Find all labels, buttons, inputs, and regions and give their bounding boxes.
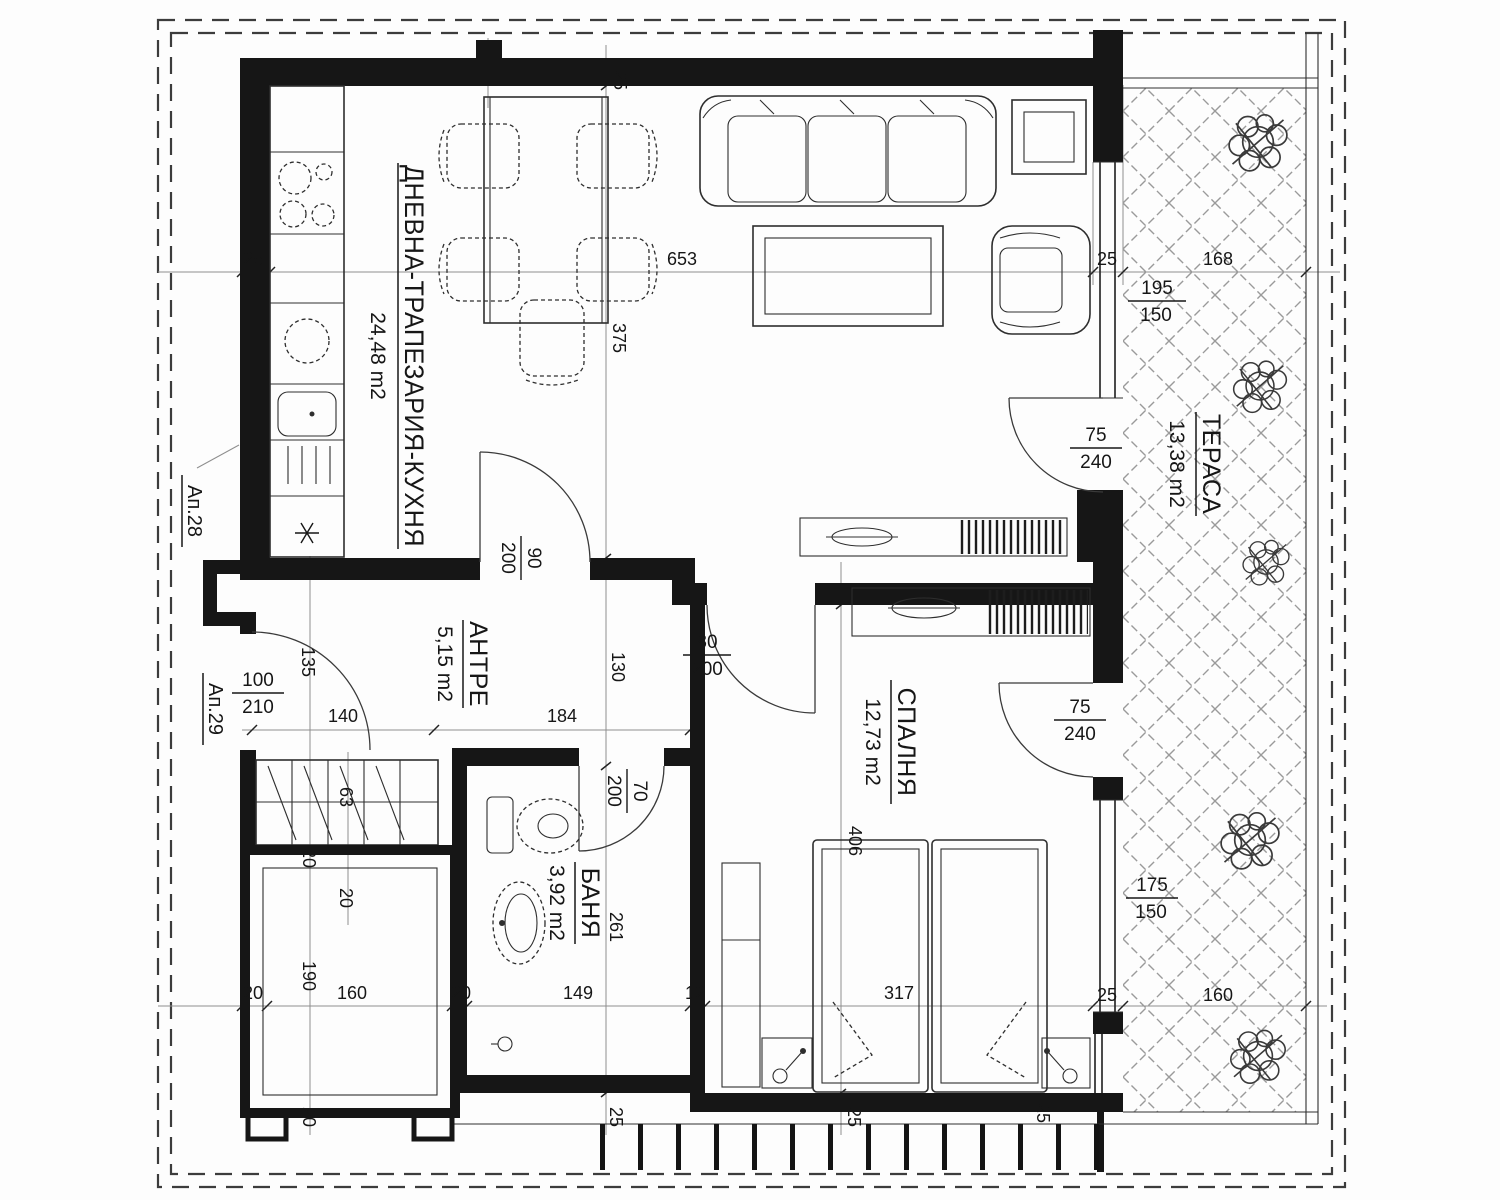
dim-bedroom-25-bottom: 25 bbox=[844, 1107, 864, 1127]
plan-rect bbox=[992, 226, 1090, 334]
plan-path bbox=[288, 446, 330, 484]
spec-bath-den: 200 bbox=[603, 775, 624, 807]
chair bbox=[447, 124, 519, 188]
plan-ellipse bbox=[538, 814, 568, 838]
closet-hanger-hatch bbox=[268, 766, 404, 840]
dim-axis-25-top: 25 bbox=[610, 70, 630, 90]
door-swing-bedroom bbox=[707, 605, 815, 713]
sofa bbox=[700, 96, 996, 206]
plan-rect bbox=[932, 840, 1047, 1092]
dim-bedroom-406: 406 bbox=[845, 826, 865, 856]
dining-table bbox=[484, 97, 608, 323]
dim-shaft-20-top: 20 bbox=[299, 848, 319, 868]
dim-top-25-left: 25 bbox=[243, 249, 263, 269]
neighbor-ap28: Ап.28 bbox=[183, 485, 205, 537]
plan-circle bbox=[499, 920, 505, 926]
plan-rect bbox=[888, 116, 966, 202]
fridge-snowflake-icon bbox=[295, 523, 319, 543]
plan-circle bbox=[316, 164, 332, 180]
spec-window-living-num: 195 bbox=[1141, 278, 1173, 299]
plan-path bbox=[703, 100, 993, 118]
wall-living-hall-left bbox=[240, 558, 480, 580]
plan-rect bbox=[822, 849, 919, 1083]
room-area-bedroom: 12,73 m2 bbox=[861, 698, 884, 786]
terrace-tile-hatch bbox=[1123, 88, 1306, 1112]
chair bbox=[447, 238, 519, 301]
wall-top bbox=[240, 58, 1123, 86]
spec-living-door: 90 200 bbox=[497, 536, 544, 580]
spec-terrace-bedroom-num: 75 bbox=[1069, 697, 1090, 718]
dim-hall-140: 140 bbox=[328, 706, 358, 726]
room-name-living: ДНЕВНА-ТРАПЕЗАРИЯ-КУХНЯ bbox=[399, 165, 429, 547]
room-area-bath: 3,92 m2 bbox=[545, 865, 568, 941]
spec-bath-num: 70 bbox=[629, 780, 650, 801]
wall-step-block bbox=[672, 558, 695, 605]
room-name-hall: АНТРЕ bbox=[464, 621, 492, 707]
plan-rect bbox=[988, 590, 1088, 634]
plan-rect bbox=[813, 840, 928, 1092]
label-ap29: Ап.29 bbox=[203, 673, 226, 745]
kitchen-sink-bowl-icon bbox=[285, 319, 329, 363]
room-name-terrace: ТЕРАСА bbox=[1197, 414, 1225, 514]
plan-path bbox=[833, 1002, 872, 1078]
plan-rect bbox=[958, 520, 1064, 554]
plan-rect bbox=[700, 96, 996, 206]
dim-hall-135: 135 bbox=[298, 647, 318, 677]
dim-closet-20: 20 bbox=[336, 888, 356, 908]
plan-circle bbox=[800, 1048, 806, 1054]
spec-terrace-living-den: 240 bbox=[1080, 452, 1112, 473]
dim-axis-375: 375 bbox=[609, 323, 629, 353]
room-label-bath: БАНЯ 3,92 m2 bbox=[545, 862, 604, 944]
plan-rect bbox=[762, 1038, 812, 1088]
bed bbox=[813, 840, 928, 1092]
plan-g: 25 bbox=[1033, 1103, 1053, 1123]
plan-g: 406 bbox=[845, 826, 865, 856]
plan-rect bbox=[1012, 100, 1086, 174]
door-swing-living bbox=[480, 452, 590, 562]
dim-bottom-25: 25 bbox=[1097, 985, 1117, 1005]
chair bbox=[577, 238, 649, 301]
wall-right-mid bbox=[1093, 490, 1123, 683]
dim-closet-63: 63 bbox=[336, 787, 356, 807]
dim-axis-25-bottom: 25 bbox=[606, 1107, 626, 1127]
plan-path bbox=[270, 152, 344, 496]
plan-g: 20 bbox=[336, 888, 356, 908]
chair bbox=[520, 300, 584, 376]
floor-plan-page: ДНЕВНА-ТРАПЕЗАРИЯ-КУХНЯ 24,48 m2 АНТРЕ 5… bbox=[0, 0, 1500, 1200]
plan-path bbox=[1000, 233, 1060, 327]
spec-bedroom-num: 80 bbox=[696, 632, 717, 653]
room-label-bedroom: СПАЛНЯ 12,73 m2 bbox=[861, 680, 920, 804]
dim-top-653: 653 bbox=[667, 249, 697, 269]
spec-window-living-den: 150 bbox=[1140, 305, 1172, 326]
plan-ellipse bbox=[505, 894, 537, 952]
spec-entrance-den: 210 bbox=[242, 697, 274, 718]
plan-rect bbox=[487, 797, 513, 853]
dim-bedroom-corner-25: 25 bbox=[1033, 1103, 1053, 1123]
plan-rect bbox=[270, 86, 344, 557]
wall-bath-bottom bbox=[452, 1075, 705, 1093]
spec-terrace-living-num: 75 bbox=[1085, 425, 1106, 446]
dim-shaft-190: 190 bbox=[299, 961, 319, 991]
plan-rect bbox=[278, 392, 336, 436]
wall-entrance-jamb-top bbox=[240, 626, 256, 634]
dim-bottom-12: 12 bbox=[685, 983, 705, 1003]
nightstand bbox=[762, 1038, 812, 1088]
plan-g: 25 bbox=[606, 1107, 626, 1127]
plan-rect bbox=[1000, 248, 1062, 312]
bedroom-dresser bbox=[722, 863, 760, 1087]
spec-living-num: 90 bbox=[523, 547, 544, 568]
plan-circle bbox=[279, 162, 311, 194]
sink-unit-icon bbox=[278, 392, 336, 484]
plan-g: 25 bbox=[610, 70, 630, 90]
dim-bottom-20a: 20 bbox=[243, 983, 263, 1003]
plan-rect bbox=[1042, 1038, 1090, 1088]
tv-cabinet bbox=[1012, 100, 1086, 174]
nightstand bbox=[1042, 1038, 1090, 1088]
plan-rect bbox=[765, 238, 931, 314]
armchair bbox=[992, 226, 1090, 334]
section-comb bbox=[600, 1124, 1103, 1170]
wall-left-jog-b bbox=[203, 574, 217, 612]
plan-rect bbox=[941, 849, 1038, 1083]
spec-terrace-bedroom-den: 240 bbox=[1064, 724, 1096, 745]
dim-bottom-160: 160 bbox=[337, 983, 367, 1003]
plan-g: 20 bbox=[299, 848, 319, 868]
plan-circle bbox=[310, 412, 315, 417]
ap28-leader-line bbox=[197, 445, 239, 468]
chair bbox=[577, 124, 649, 188]
dim-axis-261: 261 bbox=[606, 912, 626, 942]
spec-terrace-door-living: 75 240 bbox=[1070, 425, 1122, 473]
neighbor-ap29: Ап.29 bbox=[204, 683, 226, 735]
room-name-bedroom: СПАЛНЯ bbox=[892, 688, 920, 797]
bedroom-furniture bbox=[722, 588, 1090, 1092]
room-label-hall: АНТРЕ 5,15 m2 bbox=[433, 620, 492, 708]
dim-shaft-20-bottom: 20 bbox=[299, 1107, 319, 1127]
plan-circle bbox=[1044, 1048, 1050, 1054]
toilet-icon bbox=[487, 797, 583, 853]
plan-g: 130 bbox=[608, 652, 628, 682]
plan-circle bbox=[498, 1037, 512, 1051]
dim-axis-130: 130 bbox=[608, 652, 628, 682]
plan-rect bbox=[728, 116, 806, 202]
room-name-bath: БАНЯ bbox=[576, 868, 604, 939]
spec-bedroom-den: 200 bbox=[691, 659, 723, 680]
plan-rect bbox=[753, 226, 943, 326]
wall-left-jog-c bbox=[203, 612, 256, 626]
room-area-living: 24,48 m2 bbox=[366, 312, 389, 400]
plan-path bbox=[987, 1002, 1026, 1078]
plan-g: 261 bbox=[606, 912, 626, 942]
plan-rect bbox=[808, 116, 886, 202]
plan-circle bbox=[312, 204, 334, 226]
spec-entrance-door: 100 210 bbox=[232, 670, 284, 718]
living-sideboard bbox=[800, 518, 1067, 556]
plan-circle bbox=[1063, 1069, 1077, 1083]
plan-path bbox=[707, 605, 815, 713]
dim-bottom-20b: 20 bbox=[451, 983, 471, 1003]
plan-path bbox=[480, 452, 590, 562]
plan-g: 63 bbox=[336, 787, 356, 807]
bed bbox=[932, 840, 1047, 1092]
dim-bottom-160-terrace: 160 bbox=[1203, 985, 1233, 1005]
stove-icon bbox=[279, 162, 334, 227]
wall-bedroom-bottom bbox=[690, 1093, 1123, 1112]
plan-line bbox=[1048, 1052, 1064, 1070]
wall-top-notch bbox=[476, 40, 502, 60]
spec-entrance-num: 100 bbox=[242, 670, 274, 691]
plan-g: 135 bbox=[298, 647, 318, 677]
plan-rect bbox=[1024, 112, 1074, 162]
floor-plan-drawing: ДНЕВНА-ТРАПЕЗАРИЯ-КУХНЯ 24,48 m2 АНТРЕ 5… bbox=[0, 0, 1500, 1200]
window-living-terrace bbox=[1093, 162, 1123, 398]
plan-g: 375 bbox=[609, 323, 629, 353]
wall-left-below-door bbox=[240, 750, 256, 850]
plan-circle bbox=[773, 1069, 787, 1083]
room-area-terrace: 13,38 m2 bbox=[1165, 420, 1188, 508]
railing-below-window bbox=[1095, 1034, 1102, 1093]
spec-window-bedroom-den: 150 bbox=[1135, 902, 1167, 923]
plan-line bbox=[786, 1052, 802, 1070]
dim-bottom-149: 149 bbox=[563, 983, 593, 1003]
wall-left bbox=[240, 58, 270, 560]
spec-living-den: 200 bbox=[497, 542, 518, 574]
window-bedroom-terrace bbox=[1093, 800, 1123, 1012]
living-furniture bbox=[700, 96, 1090, 556]
floor-drain-icon bbox=[491, 1037, 512, 1051]
room-label-living: ДНЕВНА-ТРАПЕЗАРИЯ-КУХНЯ 24,48 m2 bbox=[366, 163, 429, 549]
plan-g: 25 bbox=[844, 1107, 864, 1127]
washbasin-icon bbox=[493, 882, 545, 964]
plan-g: 190 bbox=[299, 961, 319, 991]
kitchen-counter bbox=[270, 86, 344, 557]
dim-hall-184: 184 bbox=[547, 706, 577, 726]
wall-right-bottom-block bbox=[1093, 1012, 1123, 1034]
label-ap28: Ап.28 bbox=[182, 475, 205, 547]
plan-ellipse bbox=[517, 799, 583, 853]
wall-bath-top-left bbox=[452, 748, 579, 766]
wall-right-between-door-window bbox=[1093, 777, 1123, 800]
coffee-table bbox=[753, 226, 943, 326]
dim-top-25-right: 25 bbox=[1097, 249, 1117, 269]
plan-g: 20 bbox=[299, 1107, 319, 1127]
wall-bedroom-top-stub bbox=[695, 583, 707, 605]
wall-right-top-stub bbox=[1093, 30, 1123, 162]
doors bbox=[252, 398, 1103, 851]
spec-terrace-door-bedroom: 75 240 bbox=[1054, 697, 1106, 745]
dim-top-168: 168 bbox=[1203, 249, 1233, 269]
dim-bottom-317: 317 bbox=[884, 983, 914, 1003]
plan-circle bbox=[280, 201, 306, 227]
spec-bath-door: 70 200 bbox=[603, 769, 650, 813]
spec-window-bedroom-num: 175 bbox=[1136, 875, 1168, 896]
room-area-hall: 5,15 m2 bbox=[433, 626, 456, 702]
